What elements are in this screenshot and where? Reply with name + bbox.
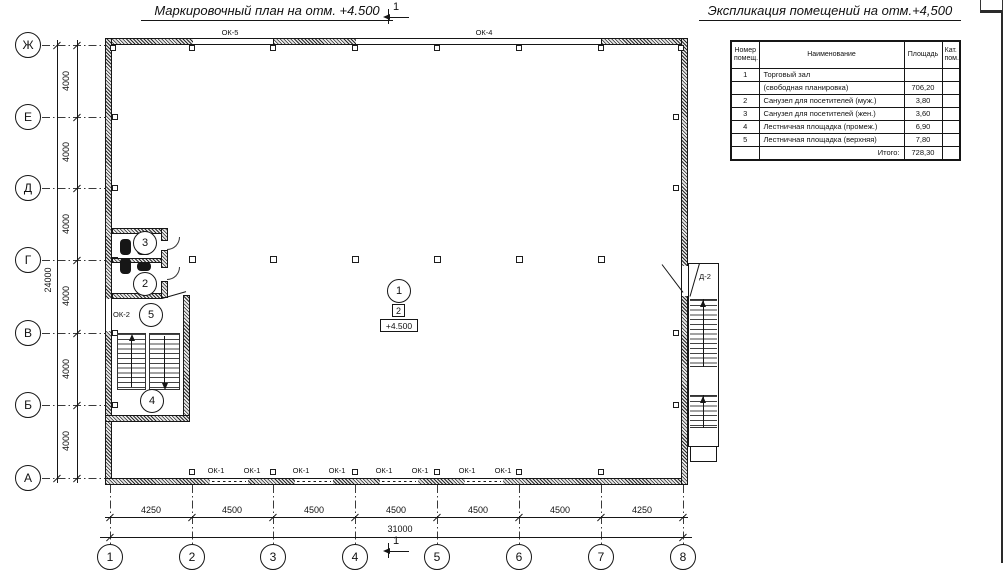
window-ok4 bbox=[356, 38, 602, 45]
interior-column bbox=[516, 256, 523, 263]
grid-bubble-row: А bbox=[15, 465, 41, 491]
window-label: ОК-4 bbox=[470, 28, 498, 37]
table-row: (свободная планировка) 706,20 bbox=[731, 82, 960, 95]
cell-area: 3,80 bbox=[904, 95, 942, 108]
window-label: ОК-1 bbox=[370, 466, 398, 475]
column bbox=[189, 45, 195, 51]
wc-right-wall-segment bbox=[161, 250, 168, 268]
grid-row-label: Д bbox=[24, 181, 32, 195]
room-number: 2 bbox=[142, 278, 148, 290]
axis-leader bbox=[42, 405, 105, 406]
column bbox=[112, 114, 118, 120]
window-label: ОК-1 bbox=[238, 466, 266, 475]
window-ok1 bbox=[465, 478, 503, 485]
axis-leader bbox=[42, 45, 105, 46]
frame-zone-box bbox=[980, 0, 1003, 13]
grid-row-label: Б bbox=[24, 398, 32, 412]
cell-name: Торговый зал bbox=[759, 69, 904, 82]
window-label-ok2: ОК-2 bbox=[113, 310, 137, 319]
grid-bubble-col: 1 bbox=[97, 544, 123, 570]
section-mark-top-label: 1 bbox=[393, 1, 399, 13]
grid-col-label: 7 bbox=[598, 550, 605, 564]
room-number: 3 bbox=[142, 237, 148, 249]
room-mark-3: 3 bbox=[133, 231, 157, 255]
cell-num: 3 bbox=[731, 108, 759, 121]
window-label: ОК-1 bbox=[406, 466, 434, 475]
dim-label-left: 4000 bbox=[61, 282, 71, 310]
window-label: ОК-1 bbox=[489, 466, 517, 475]
schedule-title: Экспликация помещений на отм.+4,500 bbox=[699, 3, 961, 21]
dim-label-bottom: 4500 bbox=[372, 505, 420, 515]
grid-bubble-row: Г bbox=[15, 247, 41, 273]
interior-column bbox=[189, 256, 196, 263]
grid-col-label: 5 bbox=[434, 550, 441, 564]
axis-leader bbox=[42, 117, 105, 118]
column bbox=[673, 185, 679, 191]
grid-row-label: А bbox=[24, 471, 32, 485]
grid-bubble-col: 7 bbox=[588, 544, 614, 570]
column bbox=[110, 45, 116, 51]
top-wall-segment bbox=[601, 38, 688, 45]
stair-direction-line bbox=[703, 306, 704, 362]
window-label: ОК-1 bbox=[453, 466, 481, 475]
column bbox=[112, 402, 118, 408]
cell-area: 728,30 bbox=[904, 147, 942, 161]
table-row: 3 Санузел для посетителей (жен.) 3,60 bbox=[731, 108, 960, 121]
grid-col-label: 6 bbox=[516, 550, 523, 564]
window-label: ОК-1 bbox=[202, 466, 230, 475]
grid-bubble-row: Е bbox=[15, 104, 41, 130]
stair-direction-line bbox=[164, 336, 165, 384]
grid-bubble-col: 2 bbox=[179, 544, 205, 570]
grid-row-label: Г bbox=[25, 253, 32, 267]
room-mark-1: 1 bbox=[387, 279, 411, 303]
dim-label-bottom: 4500 bbox=[290, 505, 338, 515]
cell-name: Лестничная площадка (верхняя) bbox=[759, 134, 904, 147]
stair-direction-line bbox=[703, 401, 704, 423]
cell-area: 6,90 bbox=[904, 121, 942, 134]
exterior-stair-landing bbox=[690, 447, 717, 462]
dim-label-left: 4000 bbox=[61, 210, 71, 238]
cell-name: Итого: bbox=[759, 147, 904, 161]
grid-bubble-col: 8 bbox=[670, 544, 696, 570]
table-row: 5 Лестничная площадка (верхняя) 7,80 bbox=[731, 134, 960, 147]
cell-cat bbox=[942, 69, 960, 82]
floor-type-number: 2 bbox=[396, 306, 401, 316]
cell-area: 3,60 bbox=[904, 108, 942, 121]
grid-col-label: 4 bbox=[352, 550, 359, 564]
elevation-mark: +4.500 bbox=[380, 319, 418, 332]
grid-row-label: В bbox=[24, 326, 32, 340]
cell-cat bbox=[942, 134, 960, 147]
table-row: 2 Санузел для посетителей (муж.) 3,80 bbox=[731, 95, 960, 108]
column bbox=[112, 185, 118, 191]
toilet-fixture bbox=[120, 258, 131, 274]
door-swing-arc bbox=[167, 267, 180, 280]
grid-bubble-row: Д bbox=[15, 175, 41, 201]
dim-label-left: 4000 bbox=[61, 427, 71, 455]
column bbox=[434, 45, 440, 51]
column bbox=[673, 114, 679, 120]
cell-num: 4 bbox=[731, 121, 759, 134]
window-glazing bbox=[297, 481, 331, 482]
cell-num: 5 bbox=[731, 134, 759, 147]
dim-label-bottom: 4500 bbox=[536, 505, 584, 515]
cell-cat bbox=[942, 108, 960, 121]
dim-label-bottom-total: 31000 bbox=[375, 524, 425, 534]
grid-col-label: 2 bbox=[189, 550, 196, 564]
window-ok1 bbox=[295, 478, 333, 485]
table-row-total: Итого: 728,30 bbox=[731, 147, 960, 161]
grid-col-label: 1 bbox=[107, 550, 114, 564]
grid-bubble-col: 4 bbox=[342, 544, 368, 570]
column bbox=[189, 469, 195, 475]
dim-label-bottom: 4250 bbox=[618, 505, 666, 515]
interior-column bbox=[598, 256, 605, 263]
drawing-sheet: { "titles": { "plan": "Маркировочный пла… bbox=[0, 0, 1007, 563]
stair-bottom-wall bbox=[105, 415, 190, 422]
window-glazing bbox=[382, 481, 416, 482]
left-dim-total-line bbox=[57, 40, 58, 483]
grid-row-label: Е bbox=[24, 110, 32, 124]
cell-name: Санузел для посетителей (жен.) bbox=[759, 108, 904, 121]
column bbox=[673, 402, 679, 408]
cell-num: 1 bbox=[731, 69, 759, 82]
table-row: 1 Торговый зал bbox=[731, 69, 960, 82]
cell-area bbox=[904, 69, 942, 82]
dim-label-bottom: 4250 bbox=[127, 505, 175, 515]
grid-bubble-col: 5 bbox=[424, 544, 450, 570]
cell-num bbox=[731, 82, 759, 95]
cell-area: 706,20 bbox=[904, 82, 942, 95]
wc-bottom-wall bbox=[112, 293, 162, 299]
left-dim-line bbox=[77, 40, 78, 483]
axis-leader bbox=[42, 188, 105, 189]
window-ok1 bbox=[380, 478, 418, 485]
window-label: ОК-5 bbox=[216, 28, 244, 37]
cell-num bbox=[731, 147, 759, 161]
stair-direction-line bbox=[131, 339, 132, 387]
col-header-area: Площадь bbox=[904, 41, 942, 69]
window-label: ОК-1 bbox=[323, 466, 351, 475]
dim-label-bottom: 4500 bbox=[208, 505, 256, 515]
dim-label-left: 4000 bbox=[61, 138, 71, 166]
window-ok5 bbox=[193, 38, 274, 45]
cell-cat bbox=[942, 121, 960, 134]
window-ok2 bbox=[105, 299, 112, 331]
cell-area: 7,80 bbox=[904, 134, 942, 147]
room-number: 4 bbox=[149, 395, 155, 407]
floor-type-mark: 2 bbox=[392, 304, 405, 317]
grid-bubble-row: Ж bbox=[15, 32, 41, 58]
cell-name: Лестничная площадка (промеж.) bbox=[759, 121, 904, 134]
window-glazing bbox=[467, 481, 501, 482]
up-arrow-icon bbox=[129, 334, 135, 341]
section-arrow-icon bbox=[383, 14, 390, 20]
col-header-cat: Кат. пом. bbox=[942, 41, 960, 69]
window-ok1 bbox=[210, 478, 248, 485]
grid-bubble-col: 3 bbox=[260, 544, 286, 570]
grid-row-label: Ж bbox=[22, 38, 33, 52]
col-header-name: Наименование bbox=[759, 41, 904, 69]
interior-column bbox=[352, 256, 359, 263]
column bbox=[673, 330, 679, 336]
room-schedule-table: Номер помещ. Наименование Площадь Кат. п… bbox=[730, 40, 961, 161]
column bbox=[598, 469, 604, 475]
cell-cat bbox=[942, 82, 960, 95]
section-mark-top-line bbox=[389, 17, 409, 18]
axis-leader bbox=[42, 333, 105, 334]
grid-bubble-row: Б bbox=[15, 392, 41, 418]
dim-label-left-total: 24000 bbox=[43, 262, 53, 298]
door-label-d2: Д-2 bbox=[693, 272, 717, 281]
window-label: ОК-1 bbox=[287, 466, 315, 475]
column bbox=[352, 45, 358, 51]
elevation-value: +4.500 bbox=[386, 321, 412, 331]
cell-name: (свободная планировка) bbox=[759, 82, 904, 95]
right-wall bbox=[681, 38, 688, 485]
grid-col-label: 3 bbox=[270, 550, 277, 564]
top-wall-segment bbox=[105, 38, 194, 45]
room-number: 5 bbox=[148, 309, 154, 321]
cell-cat bbox=[942, 147, 960, 161]
down-arrow-icon bbox=[162, 383, 168, 390]
top-wall-segment bbox=[273, 38, 357, 45]
column bbox=[516, 45, 522, 51]
column bbox=[678, 45, 684, 51]
dim-label-bottom: 4500 bbox=[454, 505, 502, 515]
column bbox=[270, 45, 276, 51]
up-arrow-icon bbox=[700, 396, 706, 403]
cell-name: Санузел для посетителей (муж.) bbox=[759, 95, 904, 108]
toilet-fixture bbox=[120, 239, 131, 255]
bottom-dim-total-line bbox=[100, 537, 692, 538]
grid-col-label: 8 bbox=[680, 550, 687, 564]
axis-leader bbox=[42, 478, 105, 479]
sink-fixture bbox=[137, 262, 151, 271]
frame-right-border bbox=[1001, 13, 1003, 563]
table-row: 4 Лестничная площадка (промеж.) 6,90 bbox=[731, 121, 960, 134]
room-mark-2: 2 bbox=[133, 272, 157, 296]
up-arrow-icon bbox=[700, 300, 706, 307]
column bbox=[516, 469, 522, 475]
col-header-num: Номер помещ. bbox=[731, 41, 759, 69]
section-mark-bottom-line bbox=[389, 551, 409, 552]
room-mark-5: 5 bbox=[139, 303, 163, 327]
room-mark-4: 4 bbox=[140, 389, 164, 413]
grid-bubble-col: 6 bbox=[506, 544, 532, 570]
dim-label-left: 4000 bbox=[61, 355, 71, 383]
column bbox=[434, 469, 440, 475]
plan-title: Маркировочный план на отм. +4.500 bbox=[141, 3, 393, 21]
interior-column bbox=[270, 256, 277, 263]
column bbox=[352, 469, 358, 475]
section-arrow-icon bbox=[383, 548, 390, 554]
cell-cat bbox=[942, 95, 960, 108]
window-glazing bbox=[212, 481, 246, 482]
column bbox=[598, 45, 604, 51]
room-number: 1 bbox=[396, 285, 402, 297]
grid-bubble-row: В bbox=[15, 320, 41, 346]
column bbox=[270, 469, 276, 475]
interior-column bbox=[434, 256, 441, 263]
door-swing-arc bbox=[167, 237, 180, 250]
stair-right-wall bbox=[183, 295, 190, 422]
dim-label-left: 4000 bbox=[61, 67, 71, 95]
cell-num: 2 bbox=[731, 95, 759, 108]
